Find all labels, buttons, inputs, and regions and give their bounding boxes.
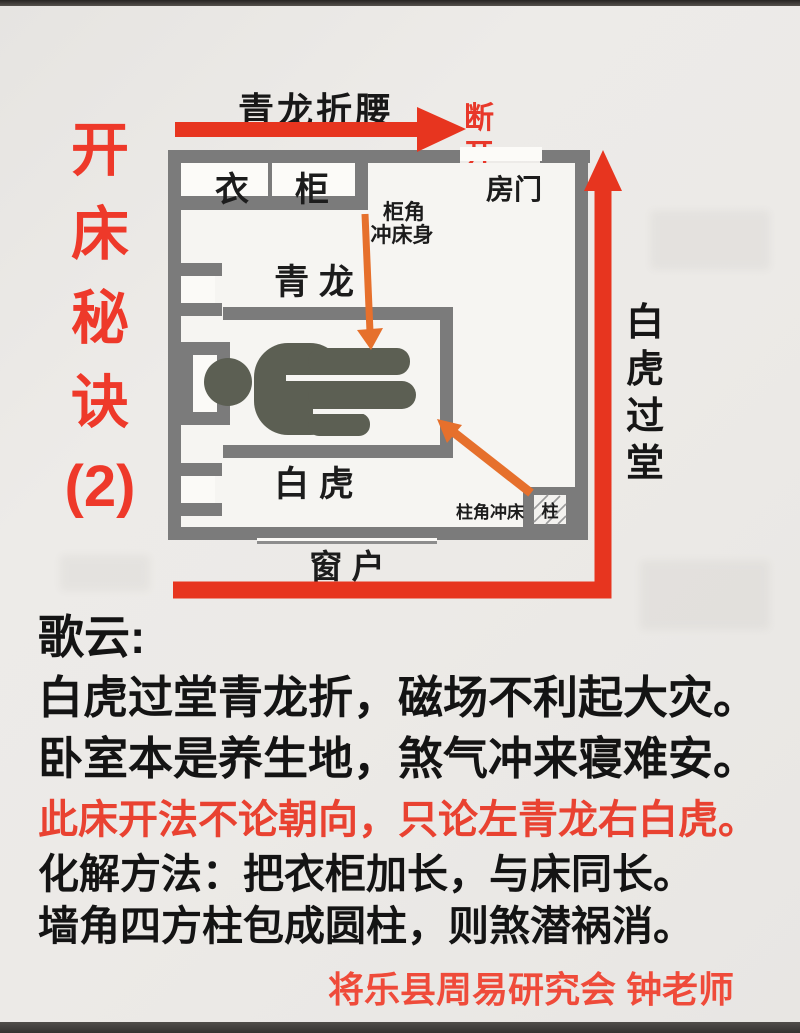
title-char: 诀 — [71, 374, 129, 432]
window-gap — [257, 538, 437, 541]
verse-line-1: 白虎过堂青龙折，磁场不利起大灾。 — [38, 673, 758, 723]
person-arm-upper — [308, 348, 410, 375]
green-dragon-broken-waist-label: 青龙折腰 — [238, 82, 394, 134]
window-label: 窗 户 — [309, 548, 384, 585]
wall-niche-upper — [181, 276, 215, 303]
wall-niche-lower — [181, 476, 215, 503]
wardrobe-label-right: 柜 — [295, 171, 329, 209]
verse-intro: 歌云: — [38, 612, 145, 663]
right-label-char: 白 — [626, 304, 664, 342]
verse-line-2: 卧室本是养生地，煞气冲来寝难安。 — [38, 734, 758, 784]
verse-line-4: 化解方法：把衣柜加长，与床同长。 — [38, 852, 694, 897]
silhouette-slit — [313, 409, 416, 414]
room-interior — [181, 163, 575, 527]
white-tiger-side-label: 白 虎 — [274, 465, 354, 504]
paper-bleedthrough-artifact — [650, 210, 770, 270]
room-door-label: 房门 — [486, 173, 542, 205]
author-signature: 将乐县周易研究会 钟老师 — [328, 961, 734, 1013]
cabinet-corner-label-line1: 柜角 — [383, 200, 425, 224]
verse-line-5: 墙角四方柱包成圆柱，则煞潜祸消。 — [38, 904, 694, 949]
poster-title-vertical: 开 床 秘 诀 (2) — [52, 122, 148, 516]
person-arm-lower — [308, 413, 370, 436]
title-char: 床 — [71, 206, 129, 264]
bottom-film-bar — [0, 1022, 800, 1033]
title-char: 开 — [71, 122, 129, 180]
silhouette-slit — [286, 375, 410, 381]
paper-bleedthrough-artifact — [640, 560, 770, 630]
door-opening — [460, 147, 542, 161]
window-sill-line — [257, 541, 437, 544]
person-legs — [308, 381, 416, 409]
pillar-corner-label: 柱角冲床 — [456, 502, 525, 522]
wardrobe-label-left: 衣 — [215, 171, 249, 209]
green-dragon-side-label: 青 龙 — [274, 263, 354, 302]
title-char: 秘 — [71, 290, 129, 348]
poster-page: 开 床 秘 诀 (2) 青龙折腰 断 开 白 虎 过 堂 — [0, 0, 800, 1033]
bedroom-floorplan: 衣 柜 房门 柜角 冲床身 青 龙 白 虎 柱角冲床 柱 窗 户 — [168, 147, 590, 597]
right-label-char: 堂 — [626, 445, 664, 483]
pillar-label: 柱 — [542, 501, 559, 521]
person-head — [204, 358, 252, 406]
verse-line-3-red: 此床开法不论朝向，只论左青龙右白虎。 — [38, 798, 758, 842]
top-film-bar — [0, 0, 800, 6]
right-label-char: 过 — [626, 398, 664, 436]
white-tiger-crossing-hall-label: 白 虎 过 堂 — [622, 304, 668, 483]
title-char: (2) — [65, 458, 136, 516]
paper-bleedthrough-artifact — [60, 555, 150, 591]
cabinet-corner-label-line2: 冲床身 — [371, 223, 434, 247]
right-label-char: 虎 — [626, 351, 664, 389]
